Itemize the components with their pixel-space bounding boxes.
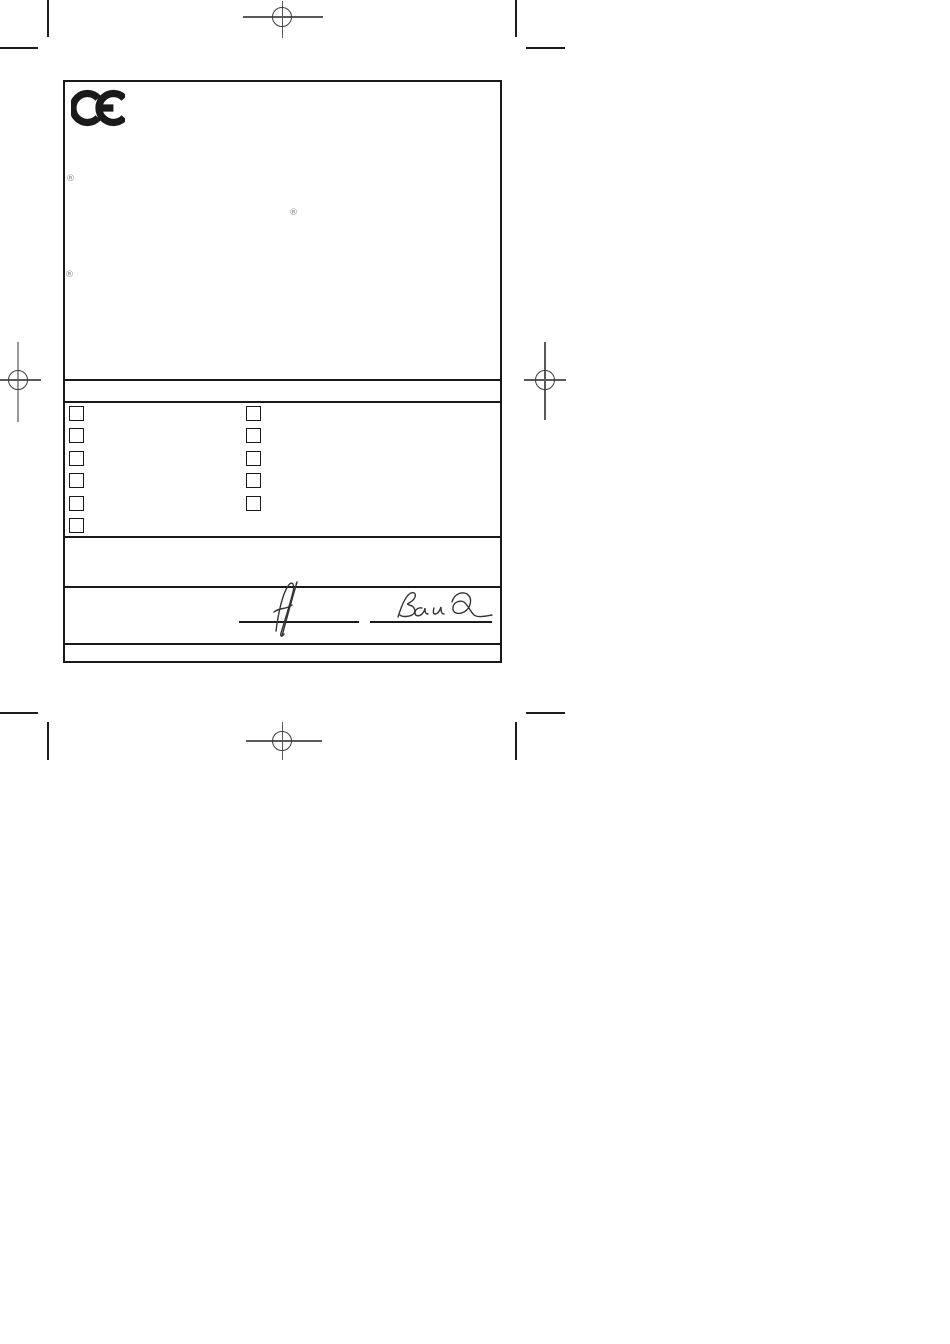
checkbox[interactable] <box>246 428 261 443</box>
checkbox[interactable] <box>69 473 84 488</box>
checkbox[interactable] <box>246 496 261 511</box>
checkbox[interactable] <box>246 473 261 488</box>
signature-right-image <box>392 587 494 629</box>
checkbox[interactable] <box>69 428 84 443</box>
crop-mark <box>47 0 49 37</box>
ce-marking-logo <box>71 89 125 127</box>
registered-trademark-icon: ® <box>289 209 298 218</box>
signature-left-image <box>264 579 320 639</box>
declaration-form-box: ® ® ® <box>63 80 502 663</box>
document-page: ® ® ® <box>0 0 950 1344</box>
crop-mark <box>0 712 38 714</box>
checkbox[interactable] <box>69 406 84 421</box>
checkbox[interactable] <box>246 406 261 421</box>
crop-mark <box>47 722 49 760</box>
crop-mark <box>526 47 565 49</box>
crop-mark <box>515 0 517 37</box>
registered-trademark-icon: ® <box>66 175 75 184</box>
registered-trademark-icon: ® <box>65 271 74 280</box>
checkbox-column-left <box>69 406 84 533</box>
crop-mark <box>515 722 517 760</box>
section-divider <box>65 536 500 538</box>
checkbox[interactable] <box>69 496 84 511</box>
section-divider <box>65 643 500 645</box>
checkbox[interactable] <box>246 451 261 466</box>
checkbox[interactable] <box>69 518 84 533</box>
checkbox[interactable] <box>69 451 84 466</box>
checkbox-column-right <box>246 406 261 511</box>
crop-mark <box>526 712 565 714</box>
section-divider <box>65 379 500 381</box>
crop-mark <box>0 47 38 49</box>
section-divider <box>65 401 500 403</box>
